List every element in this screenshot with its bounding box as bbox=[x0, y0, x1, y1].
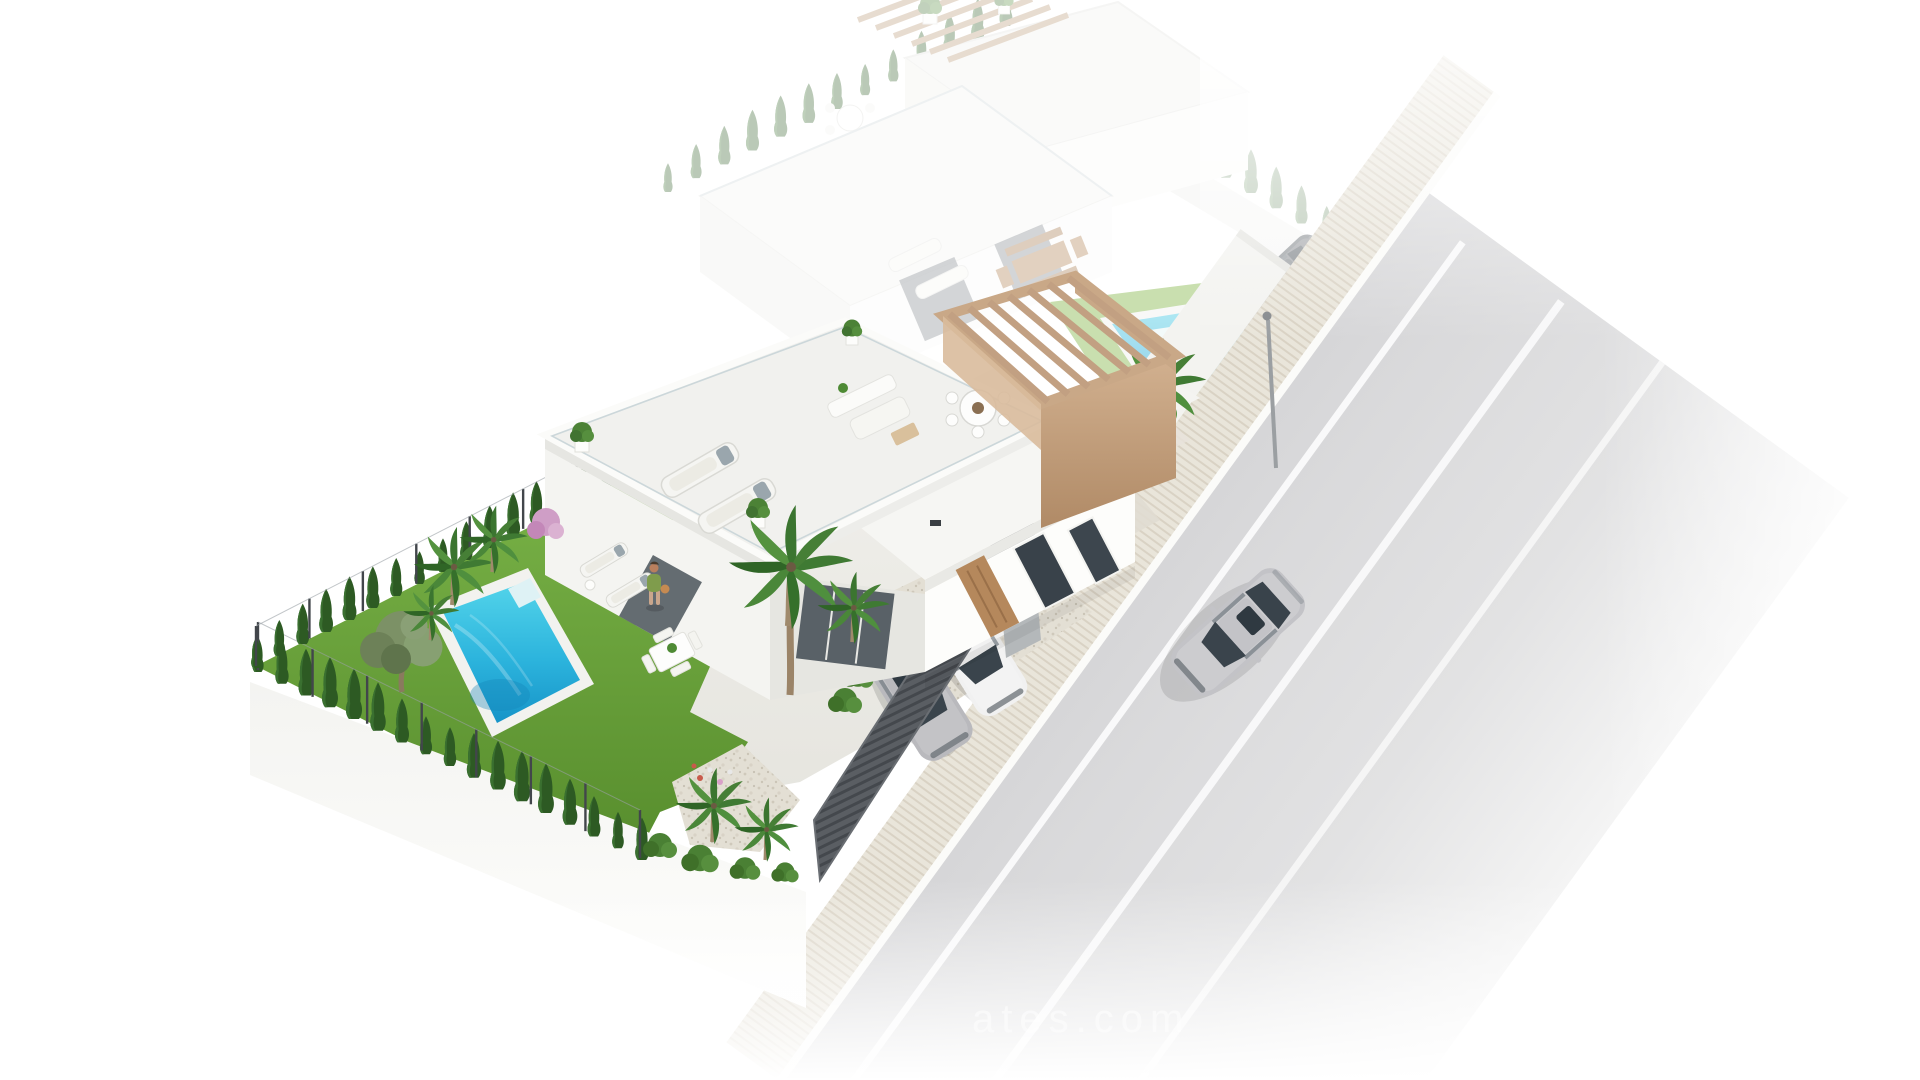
watermark-text: ates.com bbox=[972, 997, 1190, 1041]
fade-top-right bbox=[1200, 0, 1920, 340]
wall-lamp bbox=[930, 520, 941, 526]
render-stage: ates.com bbox=[0, 0, 1920, 1080]
villa-render: ates.com bbox=[0, 0, 1920, 1080]
